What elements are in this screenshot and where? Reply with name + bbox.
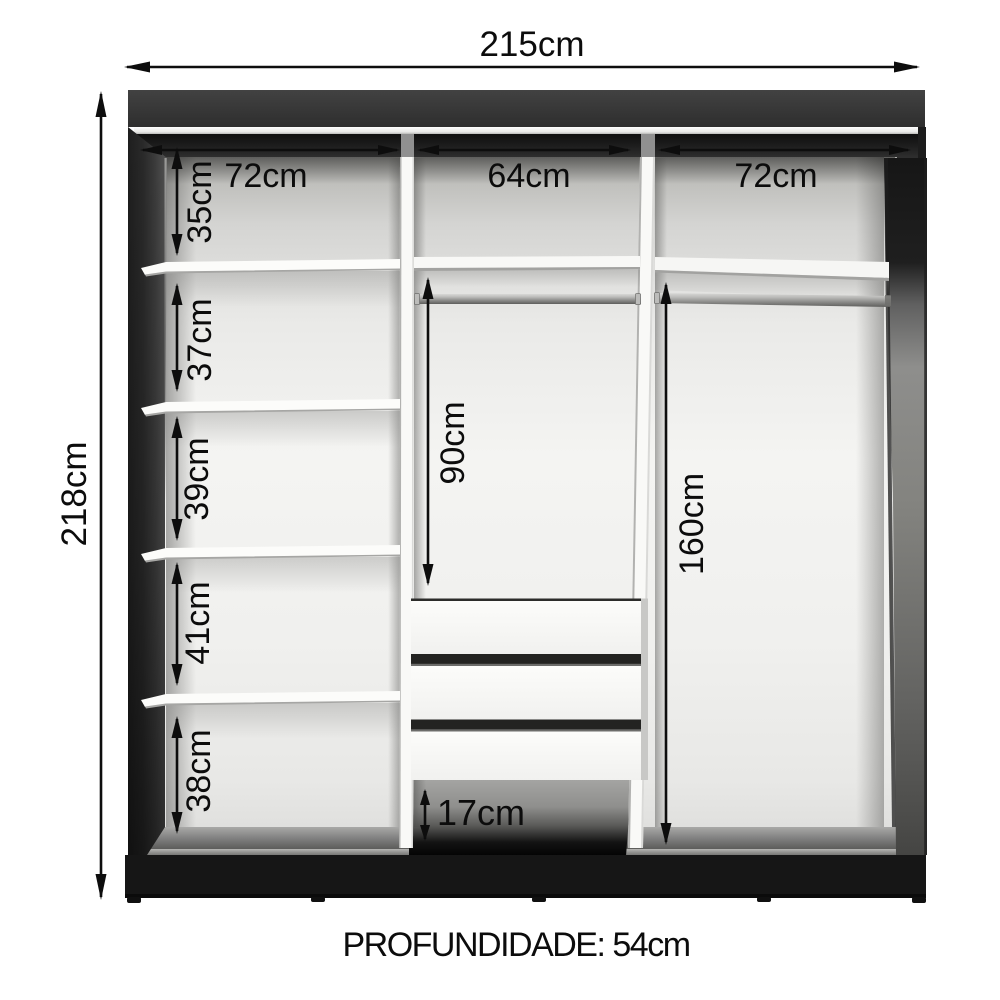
svg-text:215cm: 215cm <box>479 25 584 64</box>
svg-text:PROFUNDIDADE: 54cm: PROFUNDIDADE: 54cm <box>342 926 689 964</box>
svg-text:90cm: 90cm <box>434 401 472 484</box>
svg-text:160cm: 160cm <box>673 473 711 575</box>
svg-text:218cm: 218cm <box>55 441 94 546</box>
svg-text:35cm: 35cm <box>181 160 219 243</box>
svg-text:72cm: 72cm <box>734 157 817 195</box>
svg-text:39cm: 39cm <box>178 437 216 520</box>
svg-text:41cm: 41cm <box>179 581 217 664</box>
svg-text:64cm: 64cm <box>487 157 570 195</box>
svg-text:38cm: 38cm <box>180 729 218 812</box>
svg-text:72cm: 72cm <box>224 157 307 195</box>
svg-text:17cm: 17cm <box>437 792 525 833</box>
svg-text:37cm: 37cm <box>181 298 219 381</box>
